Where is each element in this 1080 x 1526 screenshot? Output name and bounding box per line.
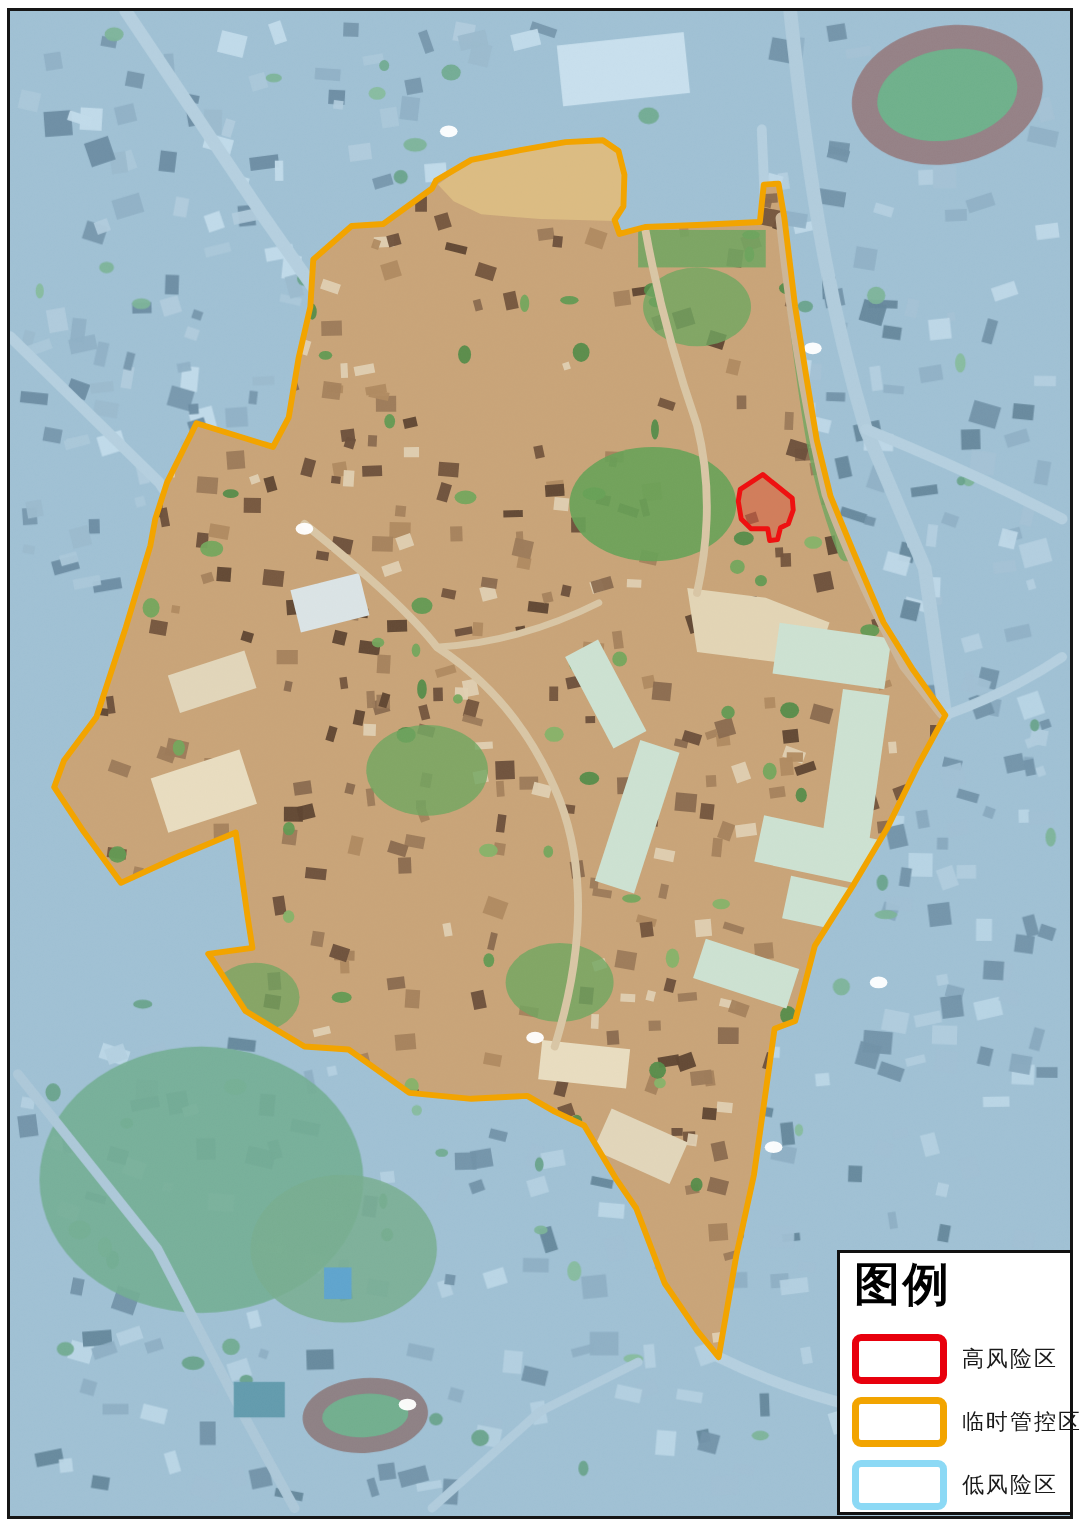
- road-label-marker: [870, 977, 888, 989]
- high-risk-label: 高风险区: [962, 1344, 1058, 1374]
- road-label-marker: [804, 342, 822, 354]
- road-label-marker: [440, 125, 458, 137]
- legend-panel: 图例 高风险区 临时管控区 低风险区: [837, 1250, 1073, 1515]
- low-risk-swatch: [852, 1460, 947, 1510]
- road-label-marker: [296, 523, 314, 535]
- high-risk-swatch: [852, 1334, 947, 1384]
- road-label-marker: [765, 1141, 783, 1153]
- legend-item-low-risk: 低风险区: [852, 1460, 1060, 1510]
- temp-control-label: 临时管控区: [962, 1407, 1080, 1437]
- road-label-marker: [526, 1032, 544, 1044]
- low-risk-label: 低风险区: [962, 1470, 1058, 1500]
- legend-item-high-risk: 高风险区: [852, 1334, 1060, 1384]
- road-label-marker: [399, 1399, 417, 1411]
- legend-title: 图例: [854, 1259, 1060, 1312]
- temp-control-swatch: [852, 1397, 947, 1447]
- legend-item-temp-control: 临时管控区: [852, 1397, 1060, 1447]
